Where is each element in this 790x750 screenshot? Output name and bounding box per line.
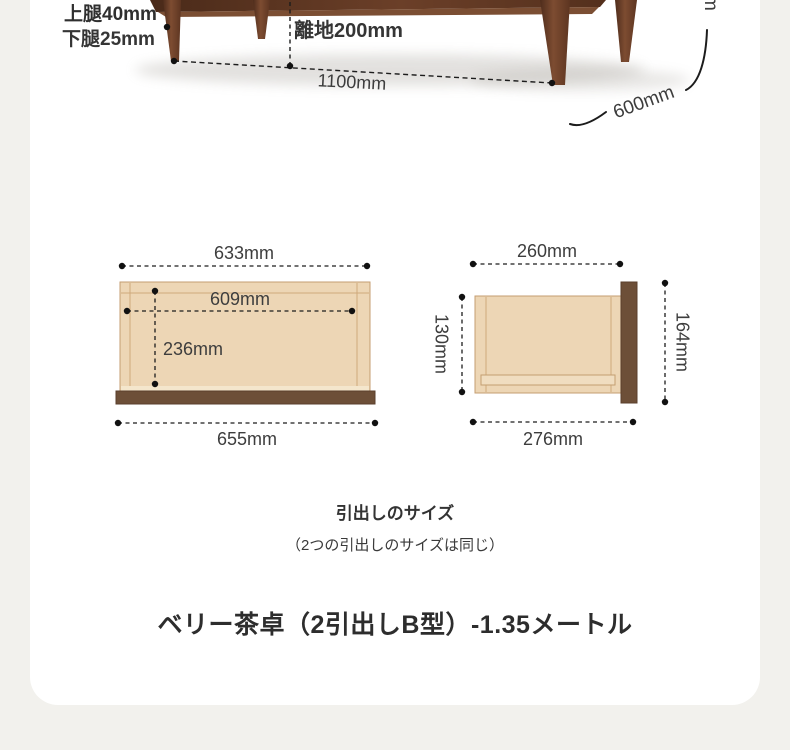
drawer-inner-width-label: 609mm	[210, 289, 270, 310]
drawer-size-heading: 引出しのサイズ	[30, 499, 760, 524]
drawer-inner-height-label: 236mm	[163, 339, 223, 360]
drawer-top-width-label: 633mm	[214, 243, 274, 264]
table-photo	[135, 0, 690, 91]
lower-leg-dimension-label: 下腿25mm	[62, 29, 155, 51]
table-leg-front-left	[163, 0, 181, 61]
depth-leader-left	[570, 112, 606, 125]
table-leg-back-right	[615, 0, 637, 62]
drawer-bottom-width-label: 655mm	[217, 429, 277, 450]
product-title: ベリー茶卓（2引出しB型）-1.35メートル	[30, 605, 760, 641]
page: { "photo": { "upper_leg_label": "上腿40mm"…	[0, 0, 790, 750]
upper-leg-dimension-label: 上腿40mm	[64, 4, 157, 26]
drawer-bottom-depth-label: 276mm	[523, 429, 583, 450]
drawer-left-height-label: 130mm	[431, 314, 452, 374]
drawer-right-height-label: 164mm	[672, 312, 693, 372]
drawer-front-panel-side	[621, 282, 637, 403]
drawer-slide-rail	[481, 375, 615, 385]
drawer-top-depth-label: 260mm	[517, 241, 577, 262]
drawer-side-view	[459, 261, 668, 425]
drawer-bottom-panel	[116, 391, 375, 404]
table-height-label-fragment: m	[699, 0, 721, 21]
drawer-size-note: （2つの引出しのサイズは同じ）	[30, 534, 760, 555]
drawer-front-view	[115, 263, 378, 426]
table-leg-back-left	[253, 0, 270, 39]
ground-clearance-label: 離地200mm	[294, 20, 403, 43]
table-length-label: 1100mm	[317, 70, 387, 94]
